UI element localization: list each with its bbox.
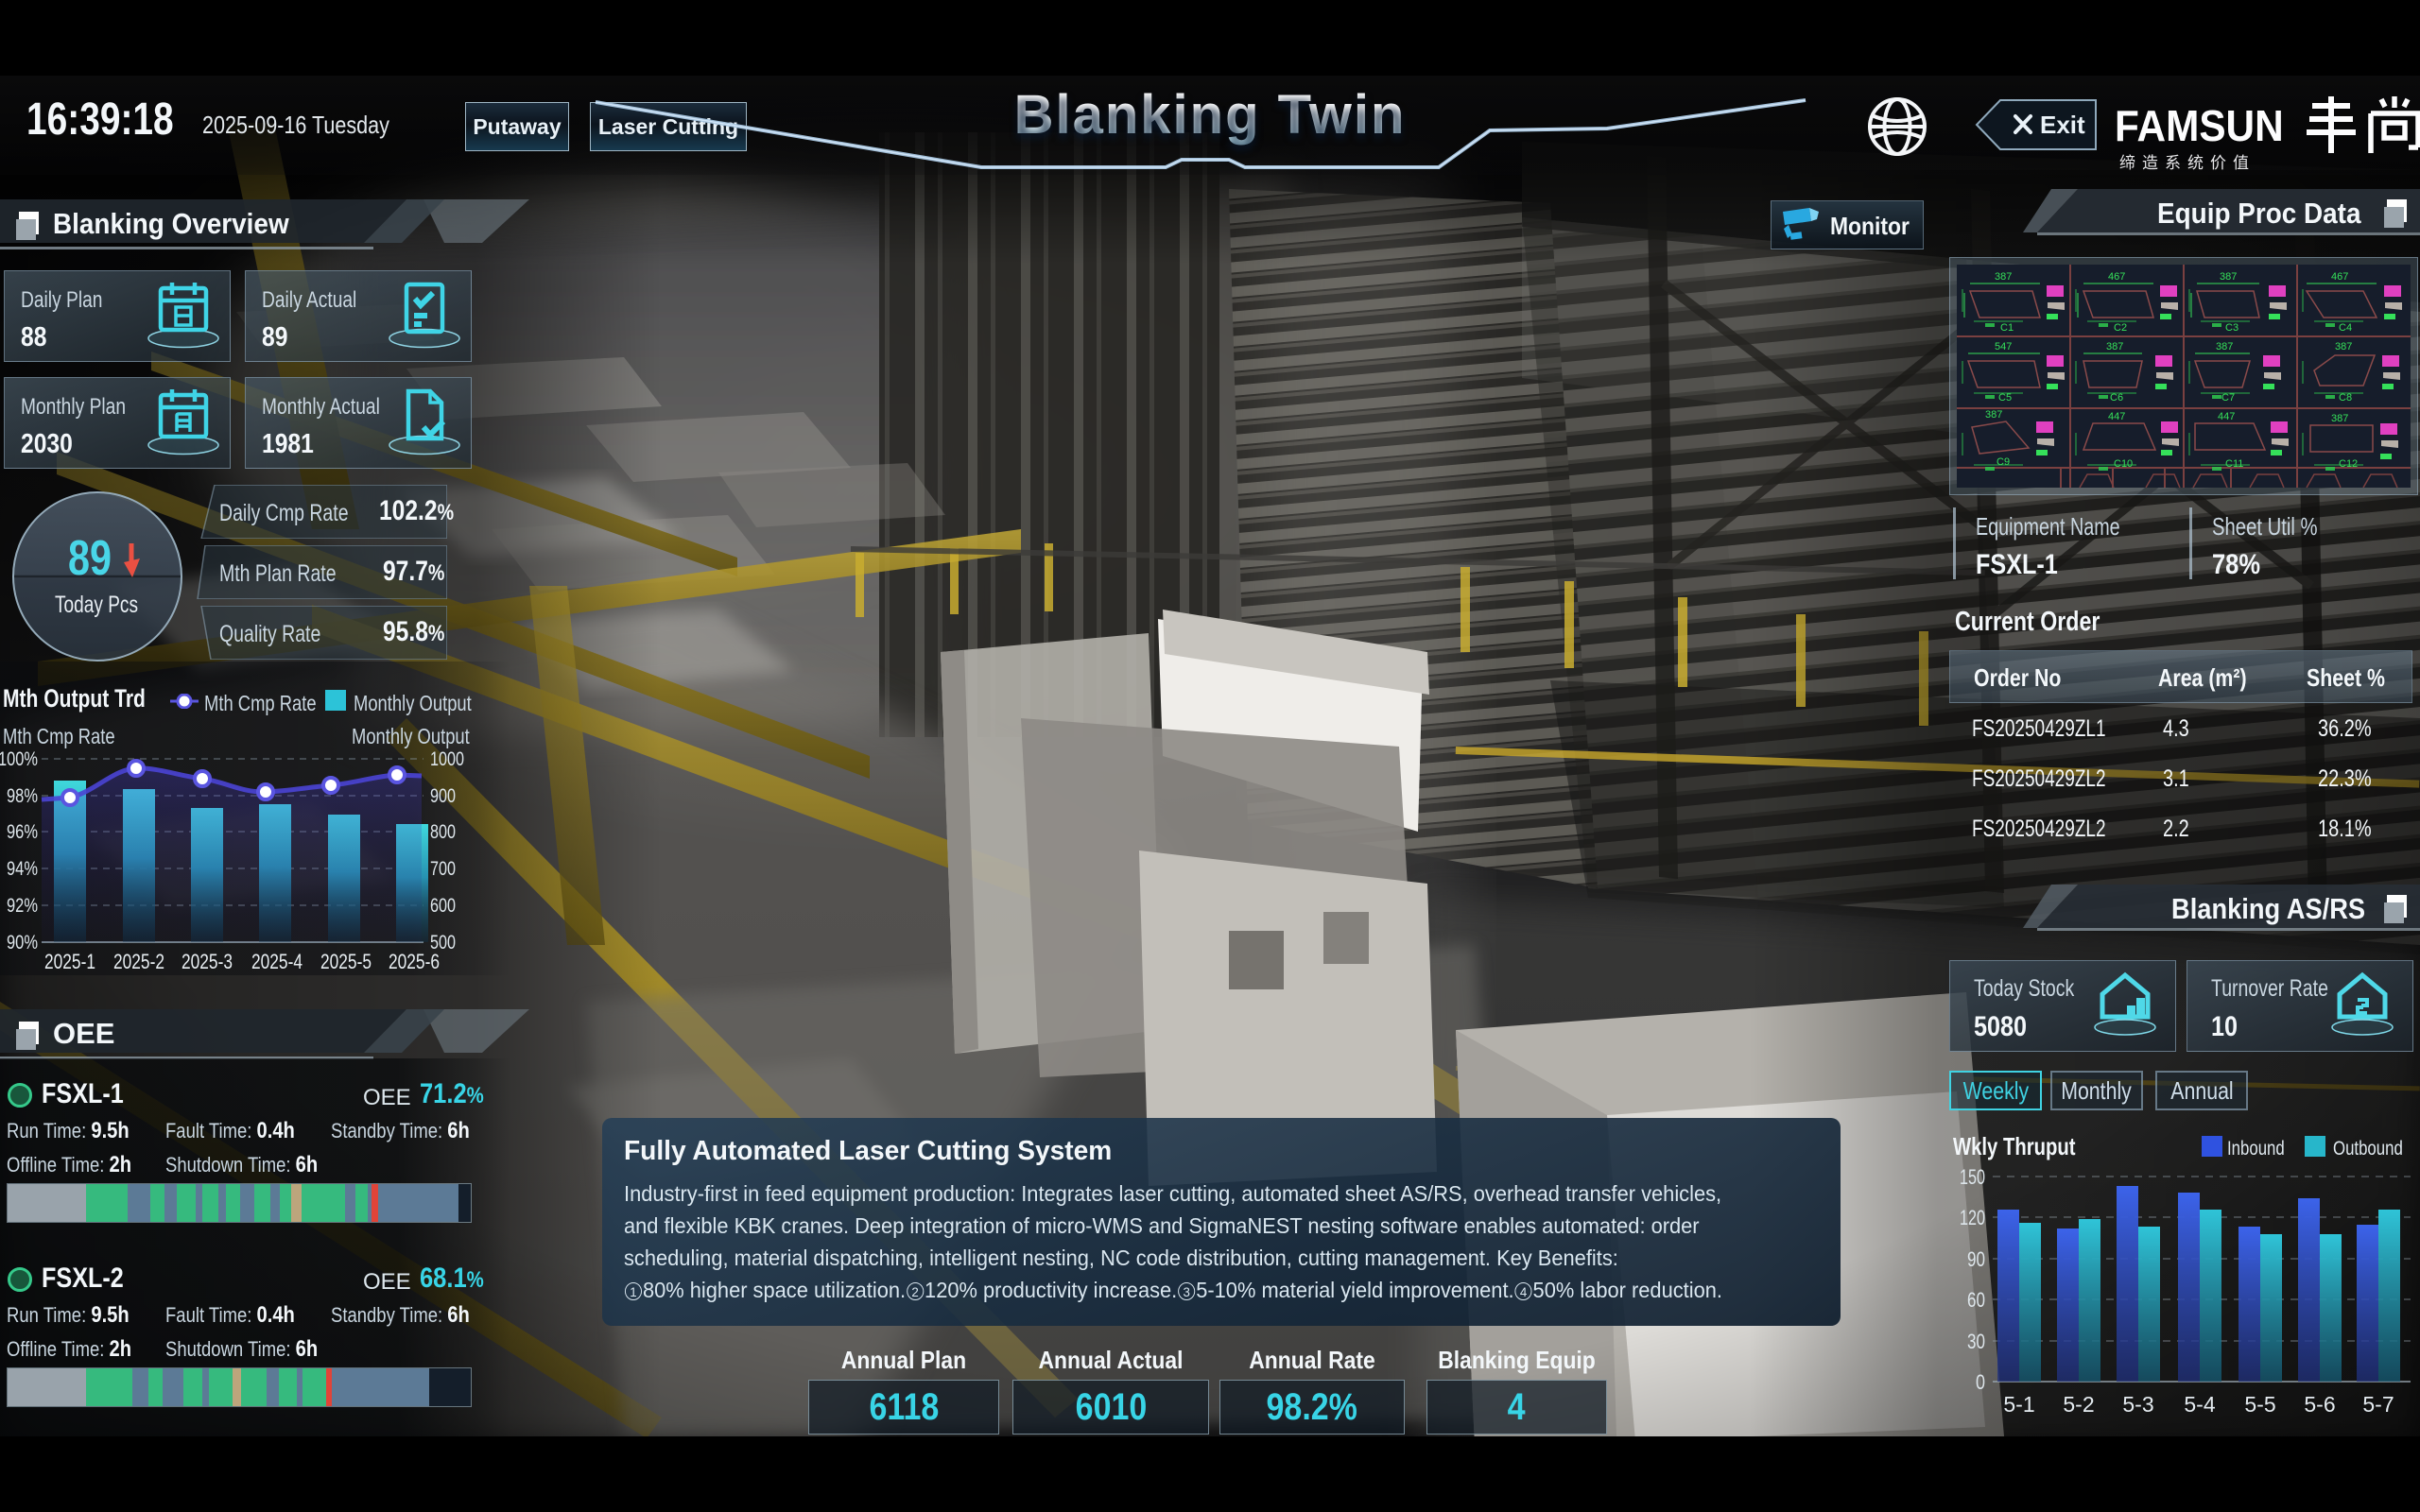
svg-text:5-3: 5-3: [2122, 1392, 2153, 1417]
svg-text:2025-5: 2025-5: [320, 950, 372, 973]
svg-text:800: 800: [430, 821, 456, 843]
svg-text:96%: 96%: [7, 821, 38, 843]
svg-text:5-7: 5-7: [2362, 1392, 2394, 1417]
svg-text:700: 700: [430, 858, 456, 880]
svg-text:387: 387: [1995, 271, 2012, 283]
svg-text:467: 467: [2108, 271, 2125, 283]
svg-text:98%: 98%: [7, 785, 38, 807]
svg-text:94%: 94%: [7, 858, 38, 880]
svg-text:C7: C7: [2221, 392, 2235, 404]
svg-text:C4: C4: [2339, 322, 2352, 334]
svg-text:600: 600: [430, 895, 456, 917]
svg-text:C5: C5: [1998, 392, 2012, 404]
svg-text:5-6: 5-6: [2304, 1392, 2335, 1417]
svg-text:387: 387: [2106, 341, 2123, 352]
svg-text:387: 387: [2216, 341, 2233, 352]
svg-text:2025-6: 2025-6: [389, 950, 440, 973]
svg-text:467: 467: [2331, 271, 2348, 283]
svg-text:900: 900: [430, 785, 456, 807]
svg-text:Exit: Exit: [2040, 111, 2085, 139]
svg-text:90%: 90%: [7, 932, 38, 954]
svg-text:5-5: 5-5: [2244, 1392, 2275, 1417]
svg-text:C10: C10: [2114, 458, 2133, 470]
svg-text:387: 387: [2331, 413, 2348, 424]
svg-text:2025-4: 2025-4: [251, 950, 302, 973]
svg-text:C3: C3: [2225, 322, 2238, 334]
svg-text:150: 150: [1960, 1165, 1985, 1189]
svg-text:447: 447: [2108, 411, 2125, 422]
svg-text:0: 0: [1976, 1370, 1985, 1394]
svg-text:5-2: 5-2: [2063, 1392, 2094, 1417]
svg-text:60: 60: [1967, 1288, 1985, 1312]
svg-text:Today Pcs: Today Pcs: [55, 592, 138, 618]
svg-text:90: 90: [1967, 1247, 1985, 1271]
svg-text:387: 387: [2335, 341, 2352, 352]
svg-text:547: 547: [1995, 341, 2012, 352]
svg-text:C2: C2: [2114, 322, 2127, 334]
svg-text:2025-1: 2025-1: [44, 950, 95, 973]
svg-text:387: 387: [2220, 271, 2237, 283]
svg-text:C9: C9: [1996, 456, 2010, 468]
svg-text:2025-3: 2025-3: [181, 950, 233, 973]
svg-text:30: 30: [1967, 1330, 1985, 1353]
svg-text:5-4: 5-4: [2184, 1392, 2215, 1417]
svg-text:92%: 92%: [7, 895, 38, 917]
svg-text:5-1: 5-1: [2003, 1392, 2034, 1417]
svg-text:387: 387: [1985, 409, 2002, 421]
svg-text:2025-2: 2025-2: [113, 950, 164, 973]
svg-text:C6: C6: [2110, 392, 2123, 404]
svg-text:C11: C11: [2225, 458, 2243, 470]
svg-text:89: 89: [68, 531, 112, 586]
svg-text:C12: C12: [2339, 458, 2358, 470]
svg-text:100%: 100%: [0, 748, 38, 770]
svg-text:1000: 1000: [430, 748, 464, 770]
svg-text:C1: C1: [2000, 322, 2014, 334]
svg-text:120: 120: [1960, 1206, 1985, 1229]
svg-text:447: 447: [2218, 411, 2235, 422]
svg-text:C8: C8: [2339, 392, 2352, 404]
